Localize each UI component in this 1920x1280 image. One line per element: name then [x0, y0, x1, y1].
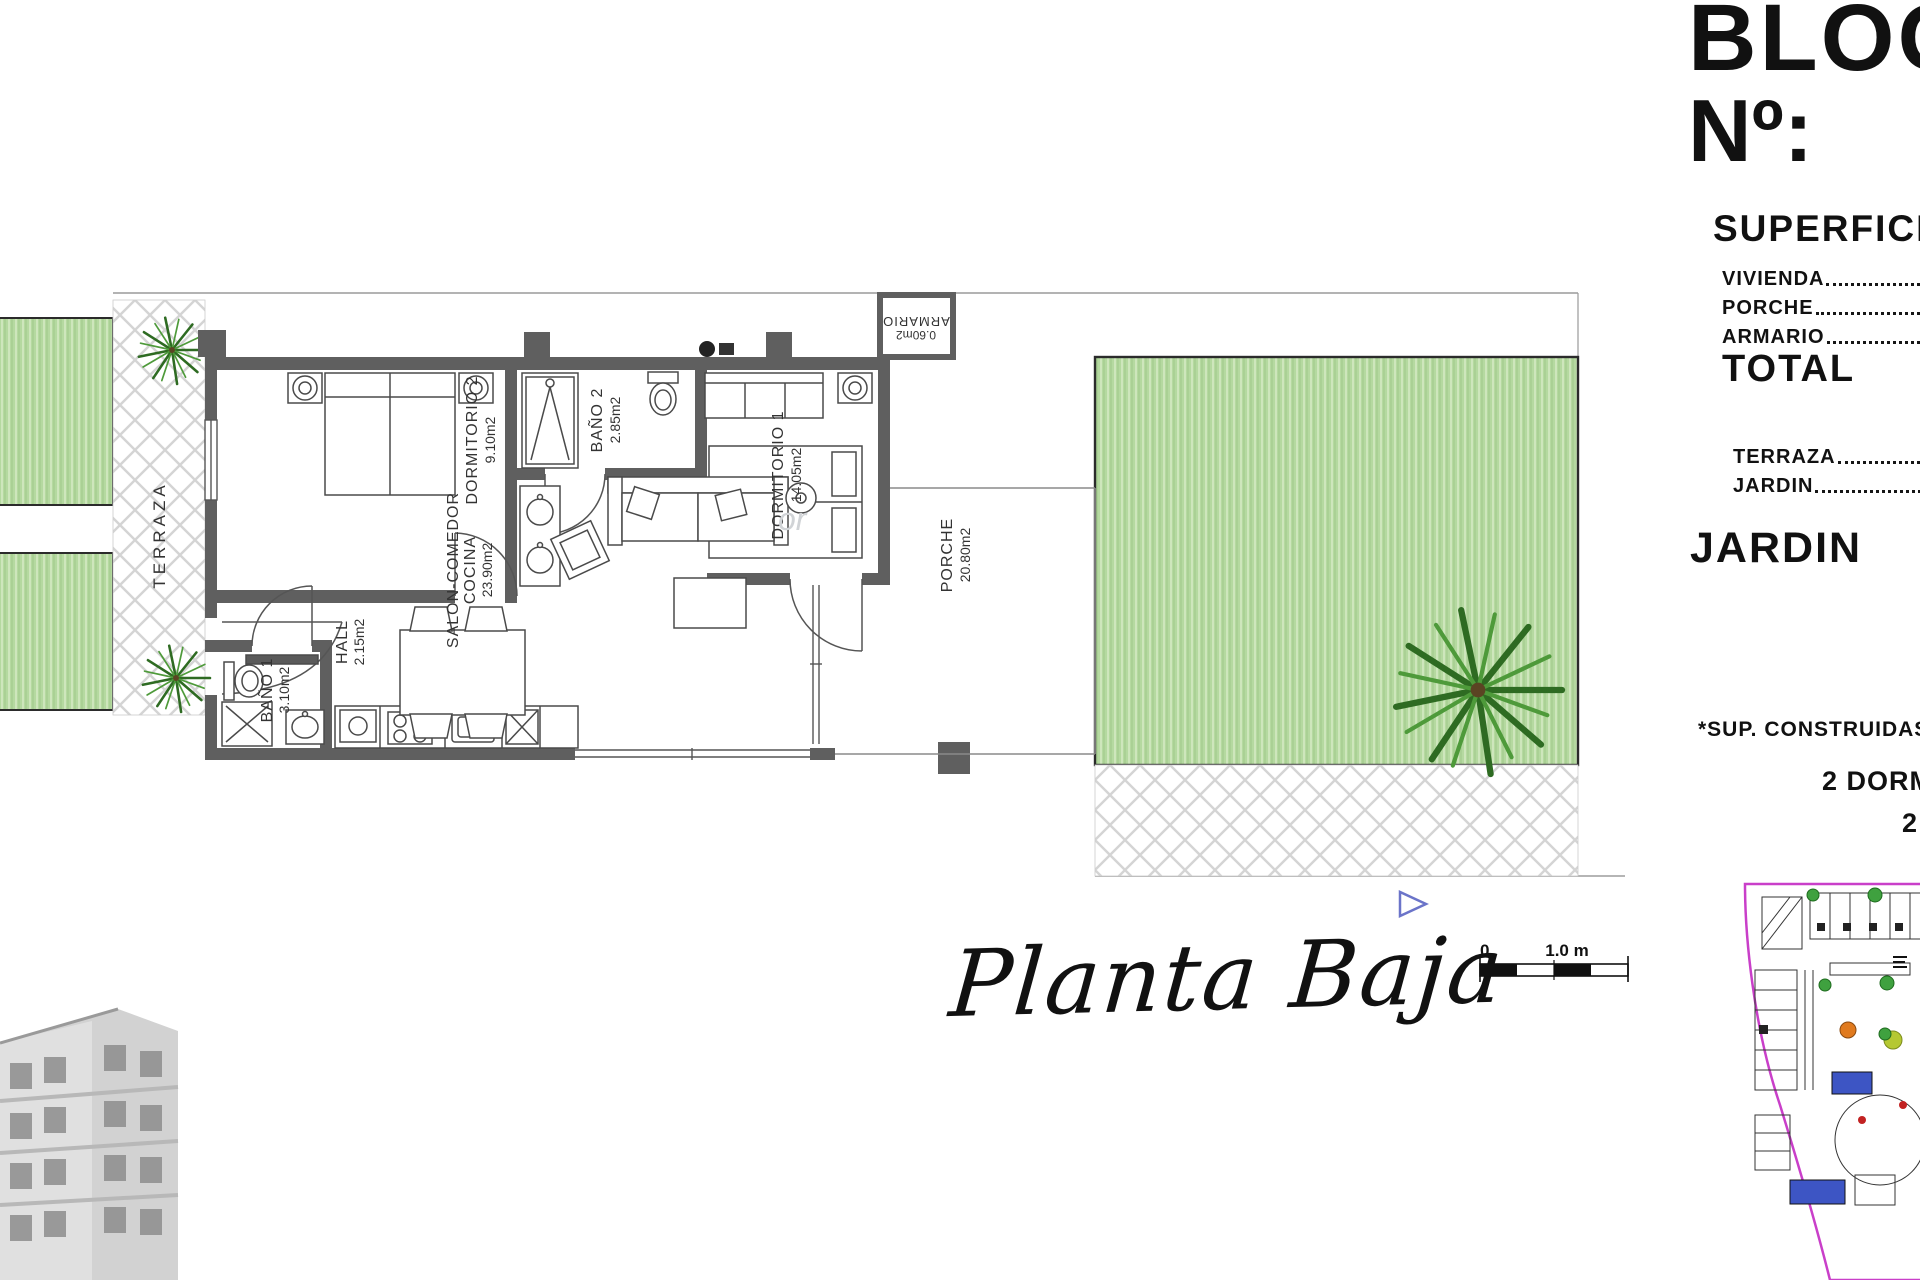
floor-plan-page: ARMARIO 0.60m2: [0, 0, 1920, 1280]
constructed-surfaces-line3: 2: [1902, 808, 1917, 839]
floor-plan-drawing: ARMARIO 0.60m2: [0, 0, 1630, 1010]
room-area-label: 3.10m2: [276, 666, 292, 713]
room-area-label: 14.05m2: [788, 448, 804, 503]
surface-label: JARDIN: [1733, 475, 1813, 498]
dotted-leader: [1827, 341, 1920, 344]
surface-label: ARMARIO: [1722, 326, 1825, 349]
garden-left-lower: [0, 553, 113, 710]
wardrobe: [705, 373, 823, 418]
watermark: or: [778, 501, 808, 537]
nightstand-lamp: [838, 373, 872, 403]
surface-label: VIVIENDA: [1722, 268, 1824, 291]
room-label: TERRAZA: [150, 481, 169, 588]
room-label: SALON-COMEDOR: [445, 492, 462, 648]
boiler-unit: [699, 341, 734, 357]
unit-number-label: Nº:: [1688, 81, 1813, 180]
dotted-leader: [1816, 312, 1920, 315]
unit-number-row: Nº: 2: [1688, 80, 1813, 182]
table-row: VIVIENDA: [1722, 262, 1920, 291]
room-area-label: 2.15m2: [351, 618, 367, 665]
dotted-leader: [1826, 283, 1920, 286]
garden-right: [1095, 357, 1578, 765]
scale-bar: 0 1.0 m: [1468, 938, 1658, 998]
washbasin: [286, 710, 324, 744]
room-label: BAÑO 2: [586, 388, 606, 453]
toilet: [224, 662, 263, 700]
room-area-label: 23.90m2: [479, 543, 495, 598]
site-plan-minimap: [1735, 875, 1920, 1280]
outdoor-surface-table: TERRAZA JARDIN: [1733, 440, 1920, 498]
nightstand-lamp: [288, 373, 322, 403]
table-row: TERRAZA: [1733, 440, 1920, 469]
room-area-label: 9.10m2: [482, 416, 498, 463]
room-area-label: 0.60m2: [896, 328, 936, 342]
dotted-leader: [1838, 461, 1920, 464]
surface-label: PORCHE: [1722, 297, 1814, 320]
scale-one-label: 1.0 m: [1545, 941, 1588, 960]
dotted-leader: [1815, 490, 1920, 493]
total-label: TOTAL: [1722, 348, 1855, 390]
bed-double: [325, 373, 455, 495]
table-row: ARMARIO: [1722, 320, 1920, 349]
constructed-surfaces-note: *SUP. CONSTRUIDAS: [1698, 718, 1920, 742]
washing-machine: [340, 710, 376, 742]
coffee-table: [674, 578, 746, 628]
room-label: BAÑO 1: [256, 658, 276, 723]
table-row: PORCHE: [1722, 291, 1920, 320]
vanity-double-sink: [520, 486, 560, 586]
path-paving-right: [1095, 765, 1578, 876]
radiator: [246, 655, 318, 664]
armario-closet: ARMARIO 0.60m2: [880, 295, 953, 357]
jardin-total-row: JARDIN _ 3: [1690, 524, 1920, 573]
shower-tray: [522, 373, 578, 468]
room-label: COCINA: [462, 536, 479, 604]
location-arrow-icon: [1394, 886, 1434, 922]
surfaces-heading: SUPERFICIES: [1713, 208, 1920, 250]
plan-caption: Planta Baja: [946, 919, 1414, 1038]
room-label: HALL: [334, 620, 351, 664]
room-area-label: 20.80m2: [957, 528, 973, 583]
total-row: TOTAL _ 8: [1722, 348, 1920, 391]
room-label: ARMARIO: [882, 314, 950, 329]
surface-table: VIVIENDA PORCHE ARMARIO: [1722, 262, 1920, 349]
scale-zero-label: 0: [1480, 941, 1489, 960]
room-label: PORCHE: [939, 518, 956, 592]
toilet: [648, 372, 678, 415]
room-area-label: 2.85m2: [607, 396, 623, 443]
surface-label: TERRAZA: [1733, 446, 1836, 469]
constructed-surfaces-line2: 2 DORM: [1822, 766, 1920, 797]
room-label: DORMITORIO 2: [464, 375, 481, 504]
jardin-label: JARDIN: [1690, 524, 1862, 572]
building-photo: [0, 1005, 180, 1280]
table-row: JARDIN: [1733, 469, 1920, 498]
sofa: [608, 477, 788, 545]
garden-left-upper: [0, 318, 113, 505]
